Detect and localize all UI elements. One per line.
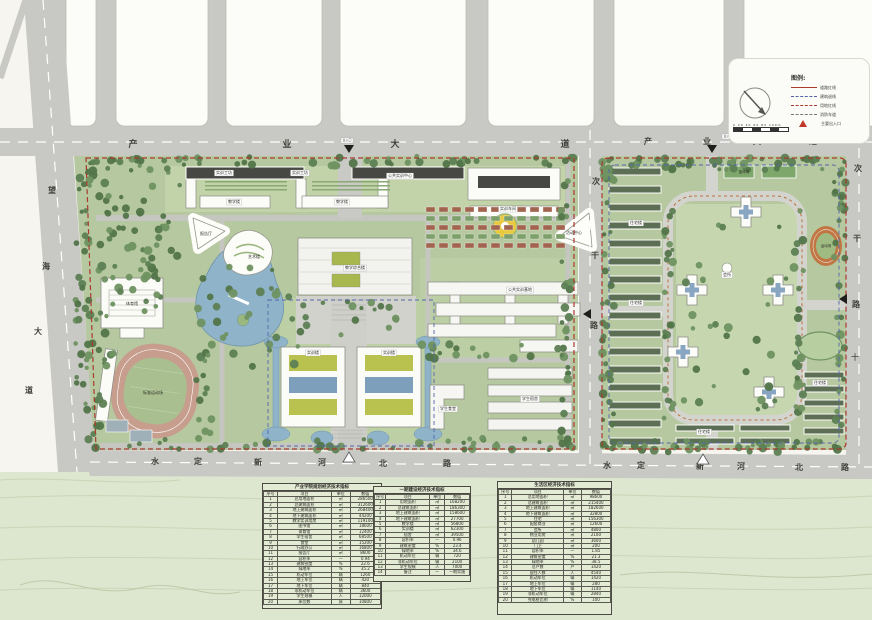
tree [559, 259, 564, 264]
tree [607, 376, 614, 383]
tree [155, 234, 162, 241]
tree [202, 391, 207, 396]
hedge-bed [426, 243, 435, 248]
tree [141, 274, 149, 282]
tree [474, 158, 480, 164]
tree [693, 365, 701, 373]
tree [175, 156, 183, 164]
tree [74, 375, 79, 380]
tree [666, 241, 673, 248]
hedge-bed [452, 207, 461, 212]
tree [600, 334, 606, 340]
tree [148, 255, 155, 262]
road-label-industry-avenue-east: 产 [644, 136, 652, 146]
tree [101, 329, 110, 338]
tree [425, 353, 433, 361]
tree [662, 416, 667, 421]
legend-entry: 用地红线 [791, 101, 841, 110]
residential-slab [609, 384, 661, 391]
tree [798, 405, 805, 412]
tree [835, 361, 841, 367]
tree [80, 381, 87, 388]
residential-slab [609, 168, 661, 175]
tree [610, 302, 618, 310]
tree [247, 265, 254, 272]
tree [196, 417, 202, 423]
tree [195, 435, 202, 442]
tree [309, 158, 318, 167]
hedge-bed [439, 225, 448, 230]
tree [96, 347, 102, 353]
tree [689, 441, 694, 446]
tree [605, 299, 611, 305]
tree [197, 318, 206, 327]
map-label: 住宅楼 [814, 379, 826, 385]
tree [456, 160, 463, 167]
tree [688, 311, 696, 319]
residential-slab [804, 400, 844, 406]
tree [740, 160, 749, 169]
tree [144, 246, 153, 255]
road-label-industry-avenue-west: 产 [128, 138, 137, 150]
tree [75, 300, 80, 305]
tree [193, 377, 199, 383]
tree [87, 183, 91, 187]
map-label: 运动场 [821, 243, 832, 248]
tree [842, 233, 847, 238]
tree [691, 326, 696, 331]
tree [562, 327, 570, 335]
tree [803, 155, 811, 163]
tree [91, 405, 96, 410]
tree [669, 258, 677, 266]
tree [708, 324, 713, 329]
tree [799, 236, 808, 245]
tree [385, 304, 392, 311]
tree [163, 437, 168, 442]
tree [479, 435, 486, 442]
hedge-bed [504, 234, 513, 239]
hedge-bed [452, 243, 461, 248]
tree [96, 241, 104, 249]
tree [289, 316, 295, 322]
tree [793, 404, 798, 409]
tree [119, 195, 123, 199]
tree [467, 436, 472, 441]
tree [75, 308, 79, 312]
tree [247, 154, 253, 160]
map-label: 实训楼 [383, 349, 395, 355]
tree [208, 341, 216, 349]
tree [196, 396, 204, 404]
tree [560, 353, 564, 357]
road-label-wanghai-avenue: 海 [42, 261, 50, 271]
tree [831, 254, 837, 260]
tree [453, 345, 459, 351]
tree [199, 275, 206, 282]
tree [743, 368, 750, 375]
hedge-bed [426, 207, 435, 212]
tree [94, 159, 100, 165]
hedge-bed [491, 216, 500, 221]
road-label-secondary-road-east: 次 [854, 163, 862, 173]
tree [560, 320, 565, 325]
hedge-bed [439, 243, 448, 248]
hedge-bed [465, 216, 474, 221]
tree [664, 257, 670, 263]
tree [297, 328, 305, 336]
tree [832, 188, 838, 194]
tree [796, 286, 802, 292]
tree [378, 303, 385, 310]
hedge-bed [439, 234, 448, 239]
tree [352, 316, 360, 324]
tree [564, 435, 572, 443]
residential-slab [609, 276, 661, 283]
map-label: 住宅楼 [630, 299, 642, 305]
tree [772, 398, 777, 403]
courtyard-hedge [312, 185, 390, 187]
tree [98, 310, 103, 315]
hedge-bed [478, 243, 487, 248]
tree [220, 334, 227, 341]
legend-line-sample [791, 114, 817, 115]
tree [616, 441, 623, 448]
road-label-shuiding-xinhe-north-road-west: 新 [254, 457, 262, 467]
tree [563, 375, 572, 384]
hedge-bed [478, 216, 487, 221]
tree [359, 306, 363, 310]
tree [735, 444, 743, 452]
tree [164, 165, 171, 172]
tree [155, 277, 160, 282]
road-label-shuiding-xinhe-north-road-east: 河 [737, 461, 745, 471]
tree [154, 242, 160, 248]
tree [100, 179, 109, 188]
tree [77, 187, 82, 192]
tree [599, 389, 608, 398]
tree [129, 168, 133, 172]
north-river-road [84, 450, 872, 479]
residential-slab [609, 258, 661, 265]
road-label-shuiding-xinhe-north-road-east: 路 [841, 462, 850, 472]
tree [131, 227, 138, 234]
tree [149, 182, 156, 189]
tree [837, 171, 843, 177]
courtyard-hedge [205, 189, 287, 191]
tree [665, 397, 671, 403]
tree [565, 178, 571, 184]
tree [302, 314, 308, 320]
hedge-bed [465, 243, 474, 248]
tree [77, 350, 85, 358]
tree [79, 285, 85, 291]
tree [835, 354, 843, 362]
tree [169, 446, 174, 451]
tree [564, 203, 569, 208]
map-label: 艺术楼 [248, 253, 260, 259]
legend-entry-label: 用地红线 [820, 103, 836, 109]
map-label: 公共实训中心 [388, 172, 412, 178]
tree [558, 213, 565, 220]
tree [136, 208, 145, 217]
tree [234, 161, 240, 167]
tree [602, 268, 609, 275]
hedge-bed [465, 207, 474, 212]
residential-slab [609, 186, 661, 193]
tree [418, 340, 427, 349]
tree [560, 410, 568, 418]
tree [80, 210, 84, 214]
road-label-shuiding-xinhe-north-road-west: 路 [443, 458, 452, 468]
map-label: 教学综合楼 [345, 264, 365, 270]
tree [105, 193, 111, 199]
tree [712, 384, 716, 388]
tree [367, 438, 373, 444]
tree [198, 354, 202, 358]
tree [841, 344, 848, 351]
campus-academic [74, 154, 592, 452]
tree [712, 321, 719, 328]
tree [565, 365, 570, 370]
tree [140, 197, 147, 204]
hedge-bed [452, 234, 461, 239]
tree [338, 332, 343, 337]
tree [669, 165, 676, 172]
tree [794, 439, 800, 445]
tree [143, 299, 149, 305]
tree [204, 385, 210, 391]
tree [806, 438, 813, 445]
tree [124, 244, 132, 252]
tree [196, 156, 202, 162]
legend-entry: 主要出入口 [791, 119, 841, 128]
tree [724, 167, 729, 172]
legend-line-sample [791, 105, 817, 106]
residential-slab [609, 330, 661, 337]
hedge-bed [504, 225, 513, 230]
road-label-wanghai-avenue: 望 [48, 185, 56, 195]
hedge-bed [491, 234, 500, 239]
tree [112, 264, 117, 269]
tree [95, 395, 103, 403]
map-label: 体育馆 [126, 300, 138, 306]
tree [695, 398, 703, 406]
map-label: 实训楼 [307, 349, 319, 355]
map-label: 实训工坊 [292, 169, 308, 175]
compass-icon [737, 85, 773, 125]
hedge-bed [543, 243, 552, 248]
hedge-bed [556, 234, 565, 239]
tree [95, 192, 103, 200]
tree [83, 406, 91, 414]
tree [83, 402, 87, 406]
tree [682, 278, 690, 286]
tree [370, 159, 378, 167]
tree [610, 177, 617, 184]
map-label: 活动中心 [566, 229, 582, 235]
legend-entry: 道路红线 [791, 83, 841, 92]
residential-slab [609, 312, 661, 319]
tree [110, 302, 115, 307]
tree [166, 220, 171, 225]
tree [654, 156, 660, 162]
tree [168, 247, 175, 254]
tree [300, 302, 306, 308]
tree [762, 167, 768, 173]
tree [200, 373, 206, 379]
road-label-secondary-road-middle: 干 [591, 251, 599, 260]
tree [75, 274, 82, 281]
tree [106, 227, 112, 233]
tree [538, 440, 542, 444]
tree [569, 444, 576, 451]
courtyard-hedge [205, 185, 287, 187]
residential-slab [804, 428, 844, 434]
tree [700, 277, 706, 283]
tree [675, 161, 682, 168]
tree [84, 357, 89, 362]
tree [681, 397, 687, 403]
tree [102, 276, 109, 283]
hedge-bed [465, 225, 474, 230]
tree [442, 160, 450, 168]
tree [253, 442, 258, 447]
tree [76, 174, 85, 183]
tree [717, 167, 721, 171]
courtyard-hedge [205, 181, 287, 183]
tree [641, 442, 647, 448]
tree [564, 336, 569, 341]
tree [213, 303, 221, 311]
tree [522, 436, 527, 441]
tree [153, 304, 158, 309]
tree [173, 252, 181, 260]
road-label-industry-avenue-east: 业 [703, 136, 711, 146]
tree [765, 302, 770, 307]
tree [242, 160, 248, 166]
tree [764, 382, 773, 391]
hedge-bed [556, 225, 565, 230]
tree [386, 325, 392, 331]
scale-bar: 0 20 40 60 80 100m [733, 123, 791, 132]
tree [661, 227, 669, 235]
tree [461, 441, 465, 445]
quad-building-east [357, 347, 421, 427]
tree [208, 415, 216, 423]
tree [389, 162, 393, 166]
tree [392, 315, 400, 323]
residential-slab [740, 425, 790, 431]
tree [249, 363, 256, 370]
tree [820, 167, 824, 171]
tree [667, 322, 674, 329]
map-label: 会所 [723, 271, 731, 277]
tree [663, 367, 669, 373]
tree [477, 355, 482, 360]
tree [609, 445, 615, 451]
tree [177, 183, 182, 188]
hedge-bed [530, 234, 539, 239]
tree [662, 334, 667, 339]
legend-panel: 图例: 道路红线建筑退线用地红线消防车道主要出入口 0 20 40 60 80 … [728, 58, 870, 144]
tree [759, 444, 768, 453]
map-label: 篮球场 [739, 169, 750, 174]
tree [437, 351, 442, 356]
tree [795, 306, 802, 313]
tree [303, 322, 311, 330]
tree [160, 213, 166, 219]
tree [122, 204, 130, 212]
tree [207, 430, 214, 437]
tree [790, 263, 799, 272]
hedge-bed [478, 234, 487, 239]
tree [373, 307, 377, 311]
legend-entry-label: 道路红线 [820, 85, 836, 91]
tree [246, 311, 253, 318]
legend-entries: 道路红线建筑退线用地红线消防车道主要出入口 [791, 83, 841, 128]
tree [470, 345, 476, 351]
road-label-wanghai-avenue: 道 [25, 385, 33, 395]
hedge-bed [517, 243, 526, 248]
hedge-bed [439, 216, 448, 221]
road-label-industry-avenue-west: 大 [390, 138, 399, 150]
tree [74, 380, 80, 386]
residential-slab [804, 372, 844, 378]
courtyard-hedge [312, 189, 390, 191]
map-label: 报告厅 [200, 230, 212, 236]
road-label-industry-avenue-west: 业 [282, 138, 291, 150]
tree [791, 248, 799, 256]
tree [405, 159, 411, 165]
tree [126, 274, 133, 281]
map-label: 住宅楼 [630, 219, 642, 225]
tree [73, 341, 78, 346]
map-label: 教学楼 [336, 198, 348, 204]
tree [321, 300, 326, 305]
map-label: 实训车间 [500, 205, 516, 211]
farmland [0, 472, 872, 620]
tree [146, 166, 153, 173]
tree [445, 439, 450, 444]
entrance-triangle-icon [799, 120, 807, 127]
hedge-bed [452, 216, 461, 221]
legend-title: 图例: [791, 73, 805, 82]
tree [140, 257, 146, 263]
hedge-bed [452, 225, 461, 230]
tree [797, 208, 802, 213]
tree [835, 282, 840, 287]
tree [559, 397, 565, 403]
tree [78, 363, 83, 368]
map-label: 学生食堂 [440, 405, 456, 411]
tree [82, 232, 89, 239]
tree [527, 352, 535, 360]
hedge-bed [426, 234, 435, 239]
tree [207, 294, 214, 301]
tree [767, 351, 775, 359]
tree [415, 158, 423, 166]
tree [194, 305, 202, 313]
tree [275, 288, 280, 293]
tree [465, 158, 471, 164]
tree [751, 443, 755, 447]
tree [767, 277, 775, 285]
tree [667, 271, 673, 277]
quad-building-west [281, 347, 345, 427]
tree [599, 319, 606, 326]
tree [102, 357, 107, 362]
